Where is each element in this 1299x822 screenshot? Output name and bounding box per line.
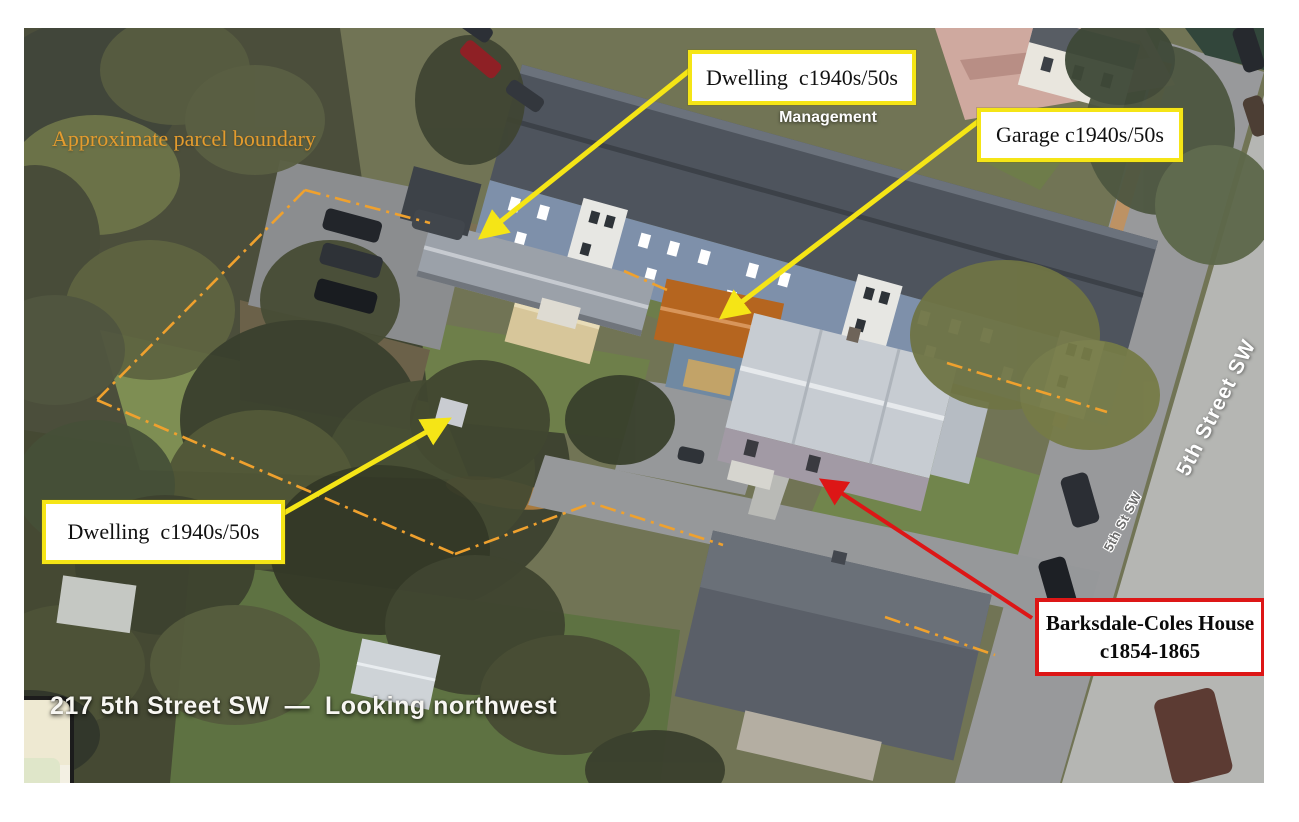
- aerial-photo: Braddock Property Management 5th Street …: [24, 28, 1264, 783]
- arrow-dwelling-left: [277, 422, 444, 517]
- label-barksdale-line2: c1854-1865: [1100, 641, 1200, 662]
- parcel-boundary-label: Approximate parcel boundary: [52, 126, 316, 152]
- label-box-barksdale: Barksdale-Coles House c1854-1865: [1035, 598, 1264, 676]
- label-dwelling-left-text: Dwelling c1940s/50s: [68, 519, 260, 545]
- arrow-barksdale: [826, 483, 1032, 618]
- screenshot-stage: Braddock Property Management 5th Street …: [0, 0, 1299, 822]
- parcel-boundary-line: [97, 190, 1107, 655]
- inset-map-patch: [24, 758, 60, 783]
- label-box-dwelling-top: Dwelling c1940s/50s: [688, 50, 916, 105]
- arrow-dwelling-top: [485, 70, 690, 234]
- label-box-dwelling-left: Dwelling c1940s/50s: [42, 500, 285, 564]
- place-label-line2: Management: [756, 108, 900, 127]
- label-dwelling-top-text: Dwelling c1940s/50s: [706, 65, 898, 91]
- photo-caption: 217 5th Street SW — Looking northwest: [50, 692, 557, 721]
- label-garage-text: Garage c1940s/50s: [996, 122, 1164, 148]
- label-barksdale-line1: Barksdale-Coles House: [1046, 613, 1254, 634]
- label-box-garage: Garage c1940s/50s: [977, 108, 1183, 162]
